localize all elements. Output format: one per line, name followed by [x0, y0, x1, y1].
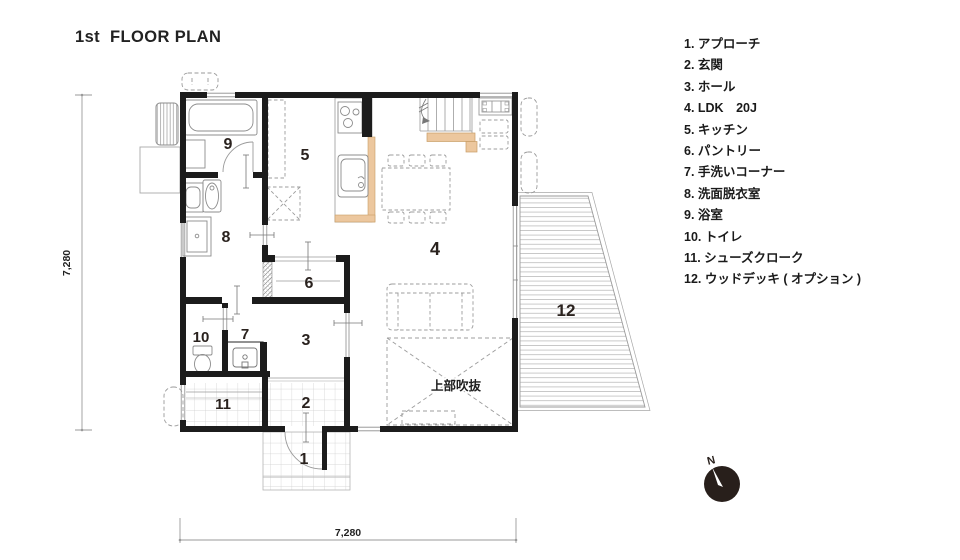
water-heater: [140, 103, 180, 193]
pantry-folding-door: [263, 262, 272, 298]
kitchen-sink-icon: [338, 155, 368, 197]
staircase: [419, 98, 472, 152]
dim-left-label: 7,280: [61, 250, 73, 276]
room-label-shoecloset: 11: [215, 396, 231, 413]
dining-set: [382, 155, 450, 223]
understair-storage: [480, 120, 508, 149]
sofa: [387, 284, 473, 330]
room-label-hall: 3: [302, 332, 311, 349]
room-label-deck: 12: [557, 301, 576, 320]
stair-half-wall: [427, 133, 477, 152]
kitchen-cupboard: [268, 100, 285, 178]
room-label-kitchen: 5: [301, 147, 310, 164]
compass-north-label: N: [706, 454, 717, 468]
stove-icon: [338, 102, 362, 133]
cabinet-icon: [479, 98, 512, 115]
room-label-washroom: 8: [222, 229, 231, 246]
wood-deck: [517, 193, 651, 411]
room-label-genkan: 2: [302, 395, 311, 412]
outdoor-ac-unit: [182, 73, 218, 90]
dimension-bottom: 7,280: [179, 518, 518, 543]
room-label-toilet: 10: [193, 329, 210, 346]
dimension-left: 7,280: [61, 94, 92, 432]
compass-icon: N: [704, 454, 740, 502]
refrigerator-space: [267, 187, 300, 220]
void-label: 上部吹抜: [431, 378, 482, 393]
toilet-icon: [193, 346, 212, 374]
floor-plan-page: { "title": "1st FLOOR PLAN", "legend": {…: [0, 0, 960, 560]
room-label-handwash: 7: [241, 326, 249, 343]
handwash-counter-icon: [227, 342, 263, 372]
dim-bottom-label: 7,280: [335, 527, 361, 539]
washroom-fixtures: [183, 180, 221, 256]
room-label-pantry: 6: [305, 275, 314, 292]
floor-plan-drawing: 7,280 7,280: [0, 0, 960, 560]
room-label-approach: 1: [300, 451, 309, 468]
room-label-bath: 9: [224, 136, 233, 153]
room-label-ldk: 4: [430, 239, 440, 259]
